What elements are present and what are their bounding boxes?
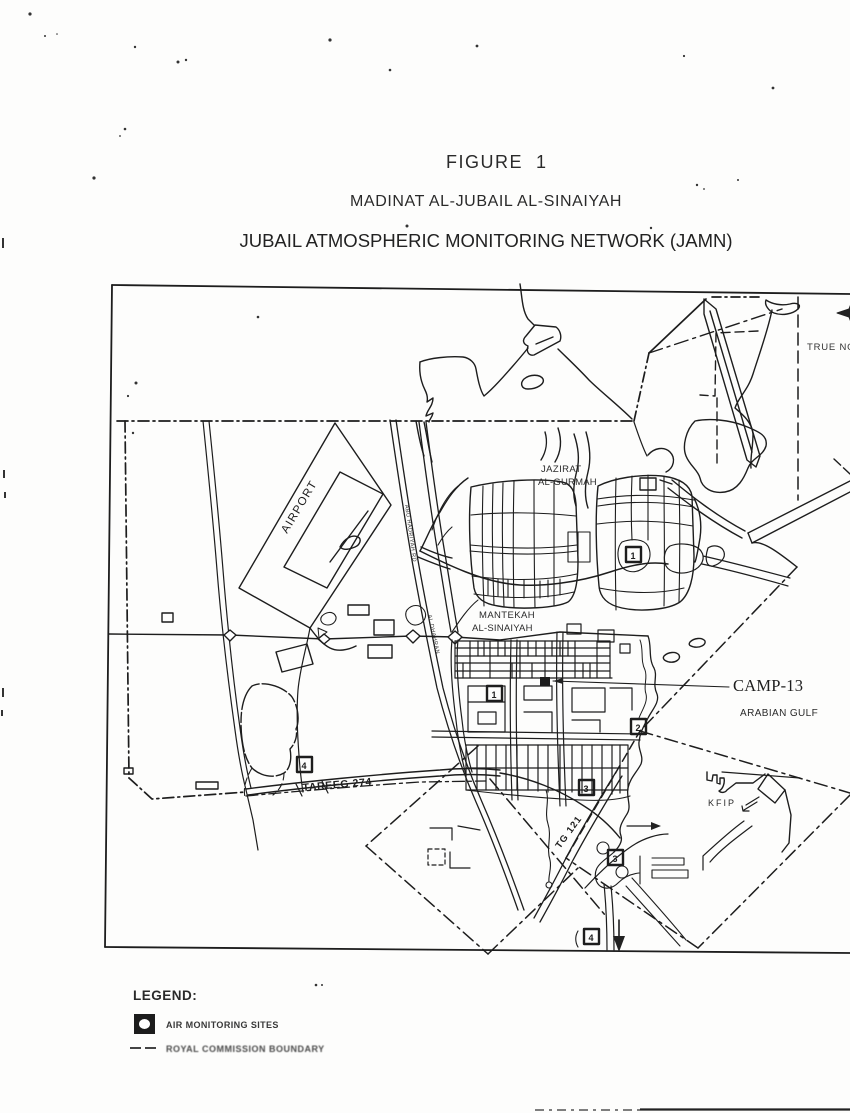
svg-text:AL-SINAIYAH: AL-SINAIYAH xyxy=(472,623,533,634)
svg-text:1: 1 xyxy=(631,551,636,561)
svg-text:4: 4 xyxy=(302,761,307,771)
svg-text:MANTEKAH: MANTEKAH xyxy=(479,610,535,621)
svg-text:3: 3 xyxy=(584,784,589,794)
svg-text:CAMP-13: CAMP-13 xyxy=(733,676,803,695)
svg-text:1: 1 xyxy=(492,690,497,700)
svg-text:TRUE NOR: TRUE NOR xyxy=(807,342,850,353)
svg-text:AL-GURMAH: AL-GURMAH xyxy=(538,477,597,488)
svg-text:4: 4 xyxy=(589,933,594,943)
svg-text:ARABIAN GULF: ARABIAN GULF xyxy=(740,708,818,719)
svg-text:JAZIRAT: JAZIRAT xyxy=(541,464,582,475)
svg-text:KFIP: KFIP xyxy=(708,798,736,808)
svg-text:3: 3 xyxy=(613,854,618,864)
svg-text:AL DHAHRAN: AL DHAHRAN xyxy=(426,614,440,655)
svg-text:2: 2 xyxy=(636,723,641,733)
svg-text:ABU HADRIYAH RD: ABU HADRIYAH RD xyxy=(403,504,417,562)
svg-text:TAREEG 274: TAREEG 274 xyxy=(302,776,372,794)
